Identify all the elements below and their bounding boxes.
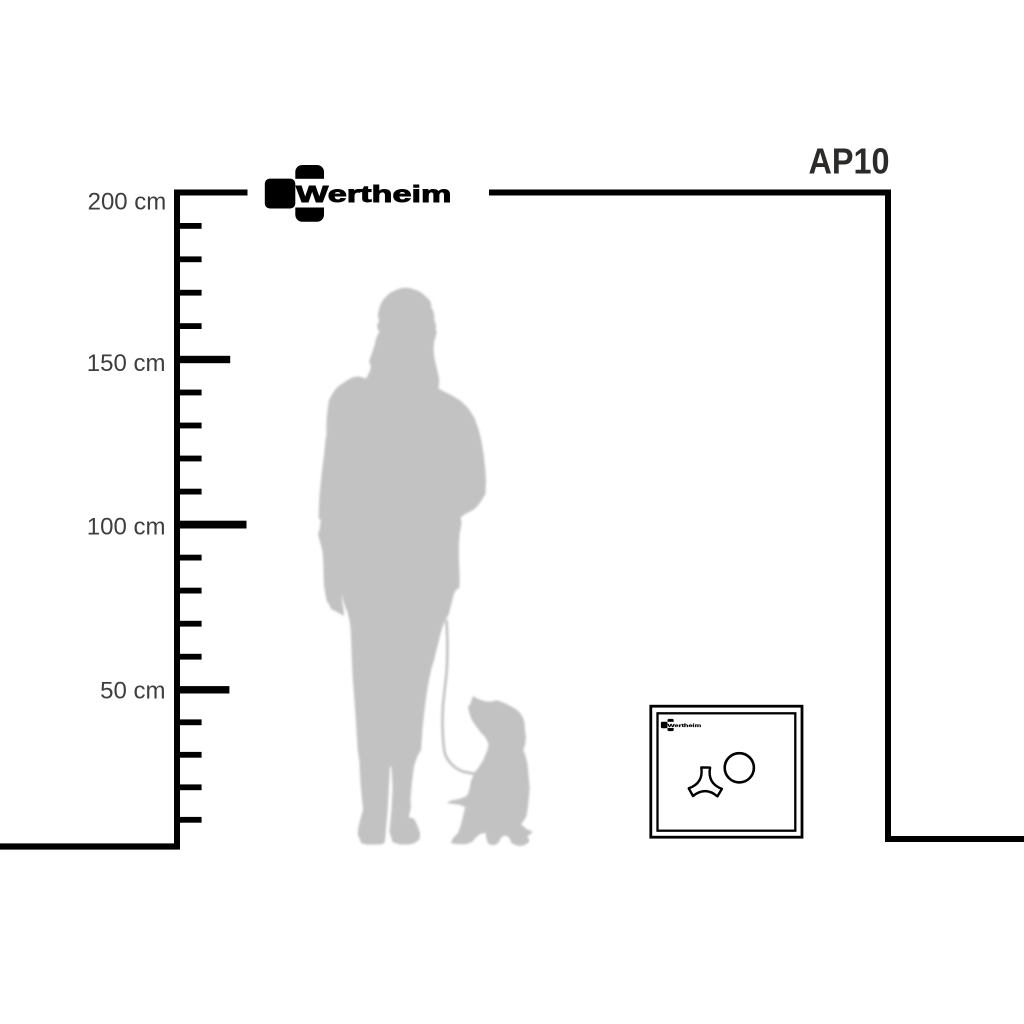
svg-text:50 cm: 50 cm	[100, 678, 165, 705]
svg-text:AP10: AP10	[809, 141, 890, 182]
svg-text:Wertheim: Wertheim	[296, 181, 452, 207]
svg-text:150 cm: 150 cm	[87, 350, 166, 377]
svg-text:100 cm: 100 cm	[87, 514, 166, 541]
svg-text:200 cm: 200 cm	[88, 188, 167, 215]
